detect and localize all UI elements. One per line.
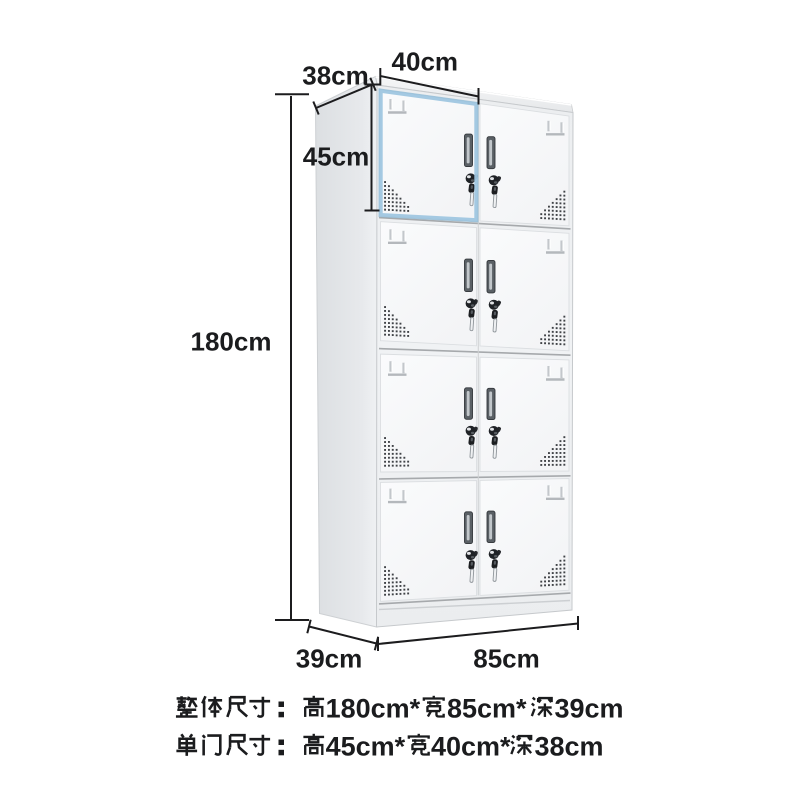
svg-text:40cm*: 40cm* xyxy=(431,731,511,761)
svg-text:38cm: 38cm xyxy=(535,731,604,761)
svg-text:39cm: 39cm xyxy=(296,644,363,674)
svg-text:40cm: 40cm xyxy=(392,47,459,77)
svg-text:45cm: 45cm xyxy=(303,142,370,172)
svg-text:38cm: 38cm xyxy=(302,61,369,91)
svg-text:39cm: 39cm xyxy=(555,693,624,723)
svg-text:180cm*: 180cm* xyxy=(326,693,421,723)
svg-text:85cm: 85cm xyxy=(473,644,540,674)
svg-text:180cm: 180cm xyxy=(191,327,272,357)
svg-text:45cm*: 45cm* xyxy=(326,731,406,761)
svg-text:85cm*: 85cm* xyxy=(447,693,527,723)
